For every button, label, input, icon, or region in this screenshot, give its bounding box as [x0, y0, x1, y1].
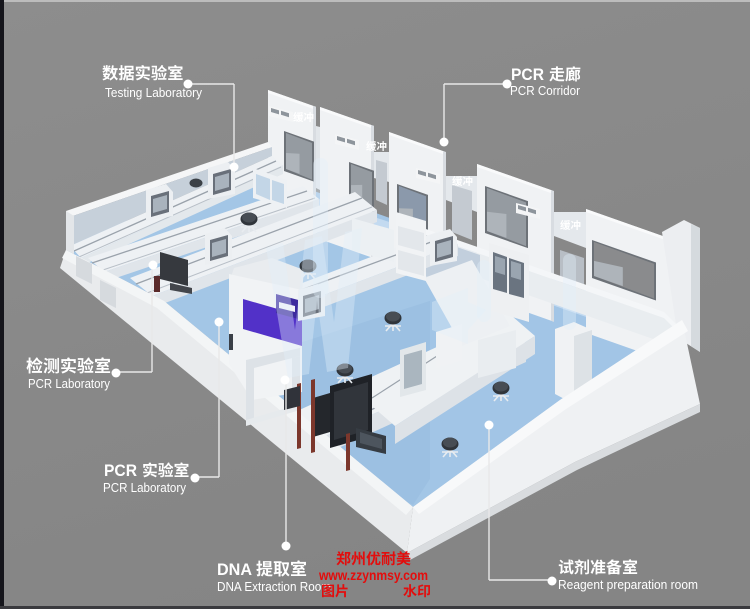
svg-text:PCR: PCR — [104, 461, 137, 480]
svg-text:Reagent preparation room: Reagent preparation room — [558, 577, 698, 592]
svg-text:DNA: DNA — [217, 560, 252, 579]
svg-text:PCR Corridor: PCR Corridor — [510, 83, 581, 98]
svg-text:DNA Extraction Room: DNA Extraction Room — [217, 579, 331, 594]
svg-text:www.zzynmsy.com: www.zzynmsy.com — [318, 567, 428, 583]
svg-text:Testing Laboratory: Testing Laboratory — [105, 85, 202, 100]
svg-text:PCR: PCR — [511, 65, 544, 84]
svg-text:PCR Laboratory: PCR Laboratory — [103, 480, 186, 495]
svg-text:PCR Laboratory: PCR Laboratory — [28, 376, 110, 391]
